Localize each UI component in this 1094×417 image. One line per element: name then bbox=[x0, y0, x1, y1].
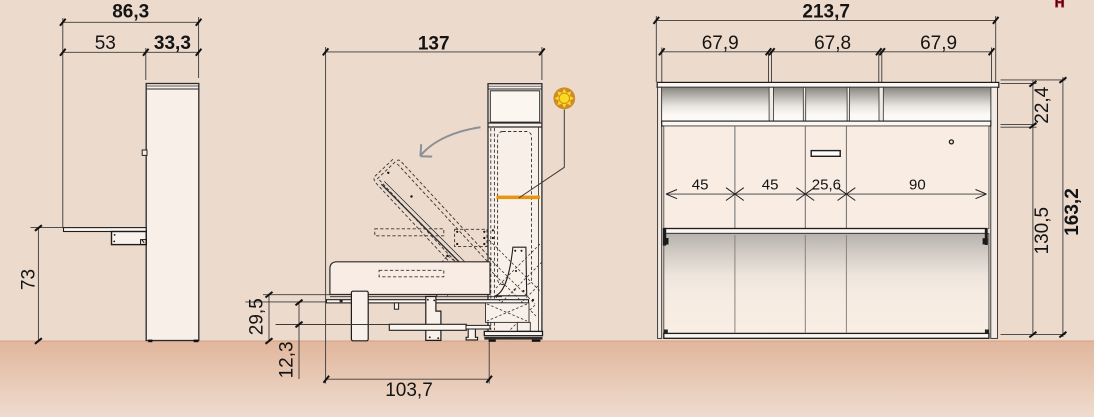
svg-text:213,7: 213,7 bbox=[802, 1, 850, 22]
svg-text:86,3: 86,3 bbox=[112, 1, 149, 22]
svg-text:67,9: 67,9 bbox=[702, 33, 739, 54]
svg-text:90: 90 bbox=[909, 176, 926, 193]
svg-text:12,3: 12,3 bbox=[277, 341, 298, 378]
svg-text:163,2: 163,2 bbox=[1062, 188, 1083, 236]
svg-text:103,7: 103,7 bbox=[385, 380, 433, 401]
svg-text:67,8: 67,8 bbox=[814, 33, 851, 54]
svg-text:25,6: 25,6 bbox=[812, 176, 841, 193]
svg-text:H: H bbox=[1055, 0, 1065, 10]
svg-text:22,4: 22,4 bbox=[1032, 86, 1053, 123]
svg-text:53: 53 bbox=[95, 33, 116, 54]
svg-text:137: 137 bbox=[418, 33, 450, 54]
svg-text:29,5: 29,5 bbox=[247, 298, 268, 335]
svg-text:33,3: 33,3 bbox=[154, 33, 191, 54]
svg-text:73: 73 bbox=[19, 269, 40, 290]
svg-text:45: 45 bbox=[692, 176, 709, 193]
svg-text:130,5: 130,5 bbox=[1032, 207, 1053, 255]
svg-text:67,9: 67,9 bbox=[920, 33, 957, 54]
svg-text:45: 45 bbox=[762, 176, 779, 193]
